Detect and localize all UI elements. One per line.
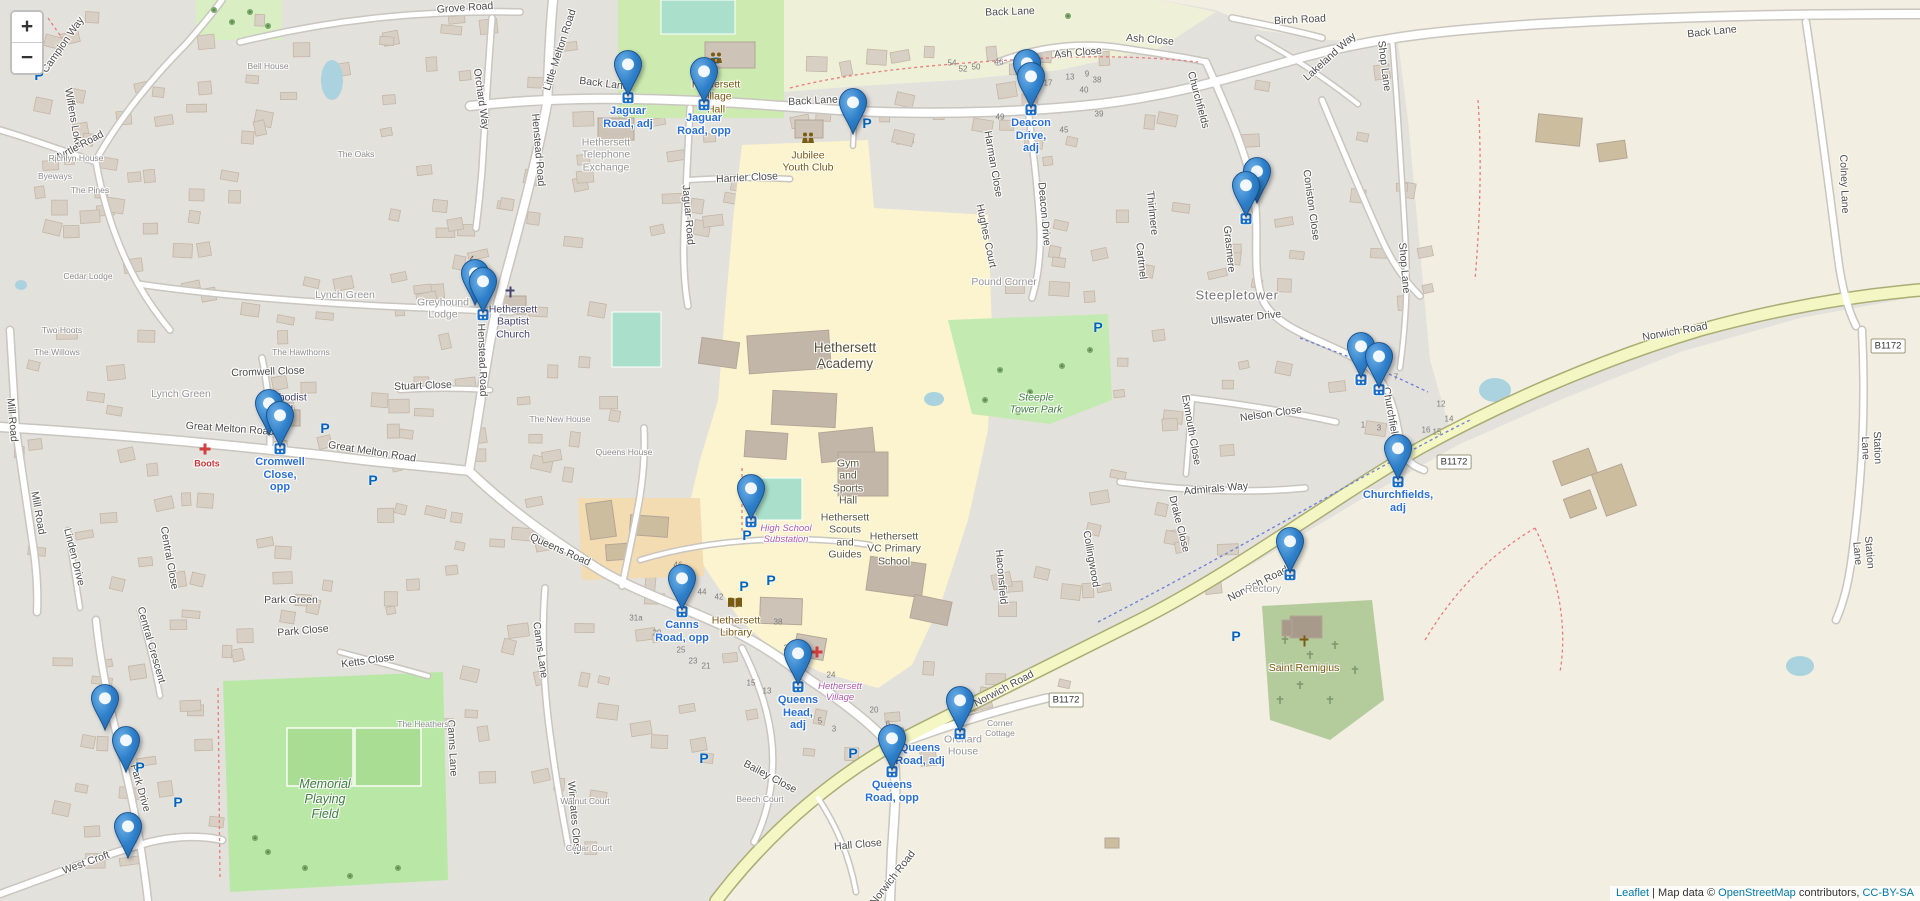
map-marker-park-drive-2[interactable] — [111, 726, 141, 778]
marker-label: Queens Head, adj — [778, 694, 818, 732]
map-marker-deacon-drive-adj[interactable] — [1016, 62, 1046, 114]
map-canvas[interactable]: Grove RoadBack LaneBack LaneBack LaneBac… — [0, 0, 1920, 901]
marker-label: Queens Road, opp — [865, 779, 919, 804]
zoom-in-button[interactable]: + — [12, 12, 42, 43]
attribution-contributors: contributors, — [1796, 887, 1863, 899]
marker-label: Jaguar Road, adj — [603, 105, 653, 130]
zoom-control: + − — [10, 10, 44, 75]
openstreetmap-link[interactable]: OpenStreetMap — [1718, 887, 1796, 899]
map-marker-west-croft[interactable] — [113, 812, 143, 864]
license-link[interactable]: CC-BY-SA — [1862, 887, 1914, 899]
leaflet-link[interactable]: Leaflet — [1616, 887, 1649, 899]
attribution-bar: Leaflet | Map data © OpenStreetMap contr… — [1610, 886, 1920, 901]
map-marker-baptist-church-2[interactable] — [468, 267, 498, 319]
map-marker-high-school[interactable] — [736, 474, 766, 526]
map-marker-queens-road-opp[interactable] — [877, 724, 907, 776]
map-marker-churchfields-2[interactable] — [1364, 342, 1394, 394]
map-marker-churchfields-adj[interactable] — [1383, 434, 1413, 486]
map-marker-canns-road-opp[interactable] — [667, 564, 697, 616]
marker-label: Deacon Drive, adj — [1011, 117, 1051, 155]
zoom-out-button[interactable]: − — [12, 43, 42, 73]
attribution-prefix: Map data © — [1658, 887, 1718, 899]
marker-label: Cromwell Close, opp — [255, 456, 305, 494]
map-marker-queens-head-adj[interactable] — [783, 639, 813, 691]
map-marker-queens-road-adj[interactable] — [945, 686, 975, 738]
map-marker-jaguar-road-adj[interactable] — [613, 50, 643, 102]
map-marker-jaguar-road-opp[interactable] — [689, 57, 719, 109]
map-marker-back-lane-car-park[interactable] — [838, 88, 868, 140]
marker-label: Canns Road, opp — [655, 619, 709, 644]
map-marker-coniston-close-2[interactable] — [1231, 171, 1261, 223]
marker-label: Churchfields, adj — [1363, 489, 1433, 514]
map-marker-cromwell-close-opp[interactable] — [265, 401, 295, 453]
marker-label: Jaguar Road, opp — [677, 112, 731, 137]
attribution-separator: | — [1649, 887, 1658, 899]
map-marker-norwich-road[interactable] — [1275, 527, 1305, 579]
